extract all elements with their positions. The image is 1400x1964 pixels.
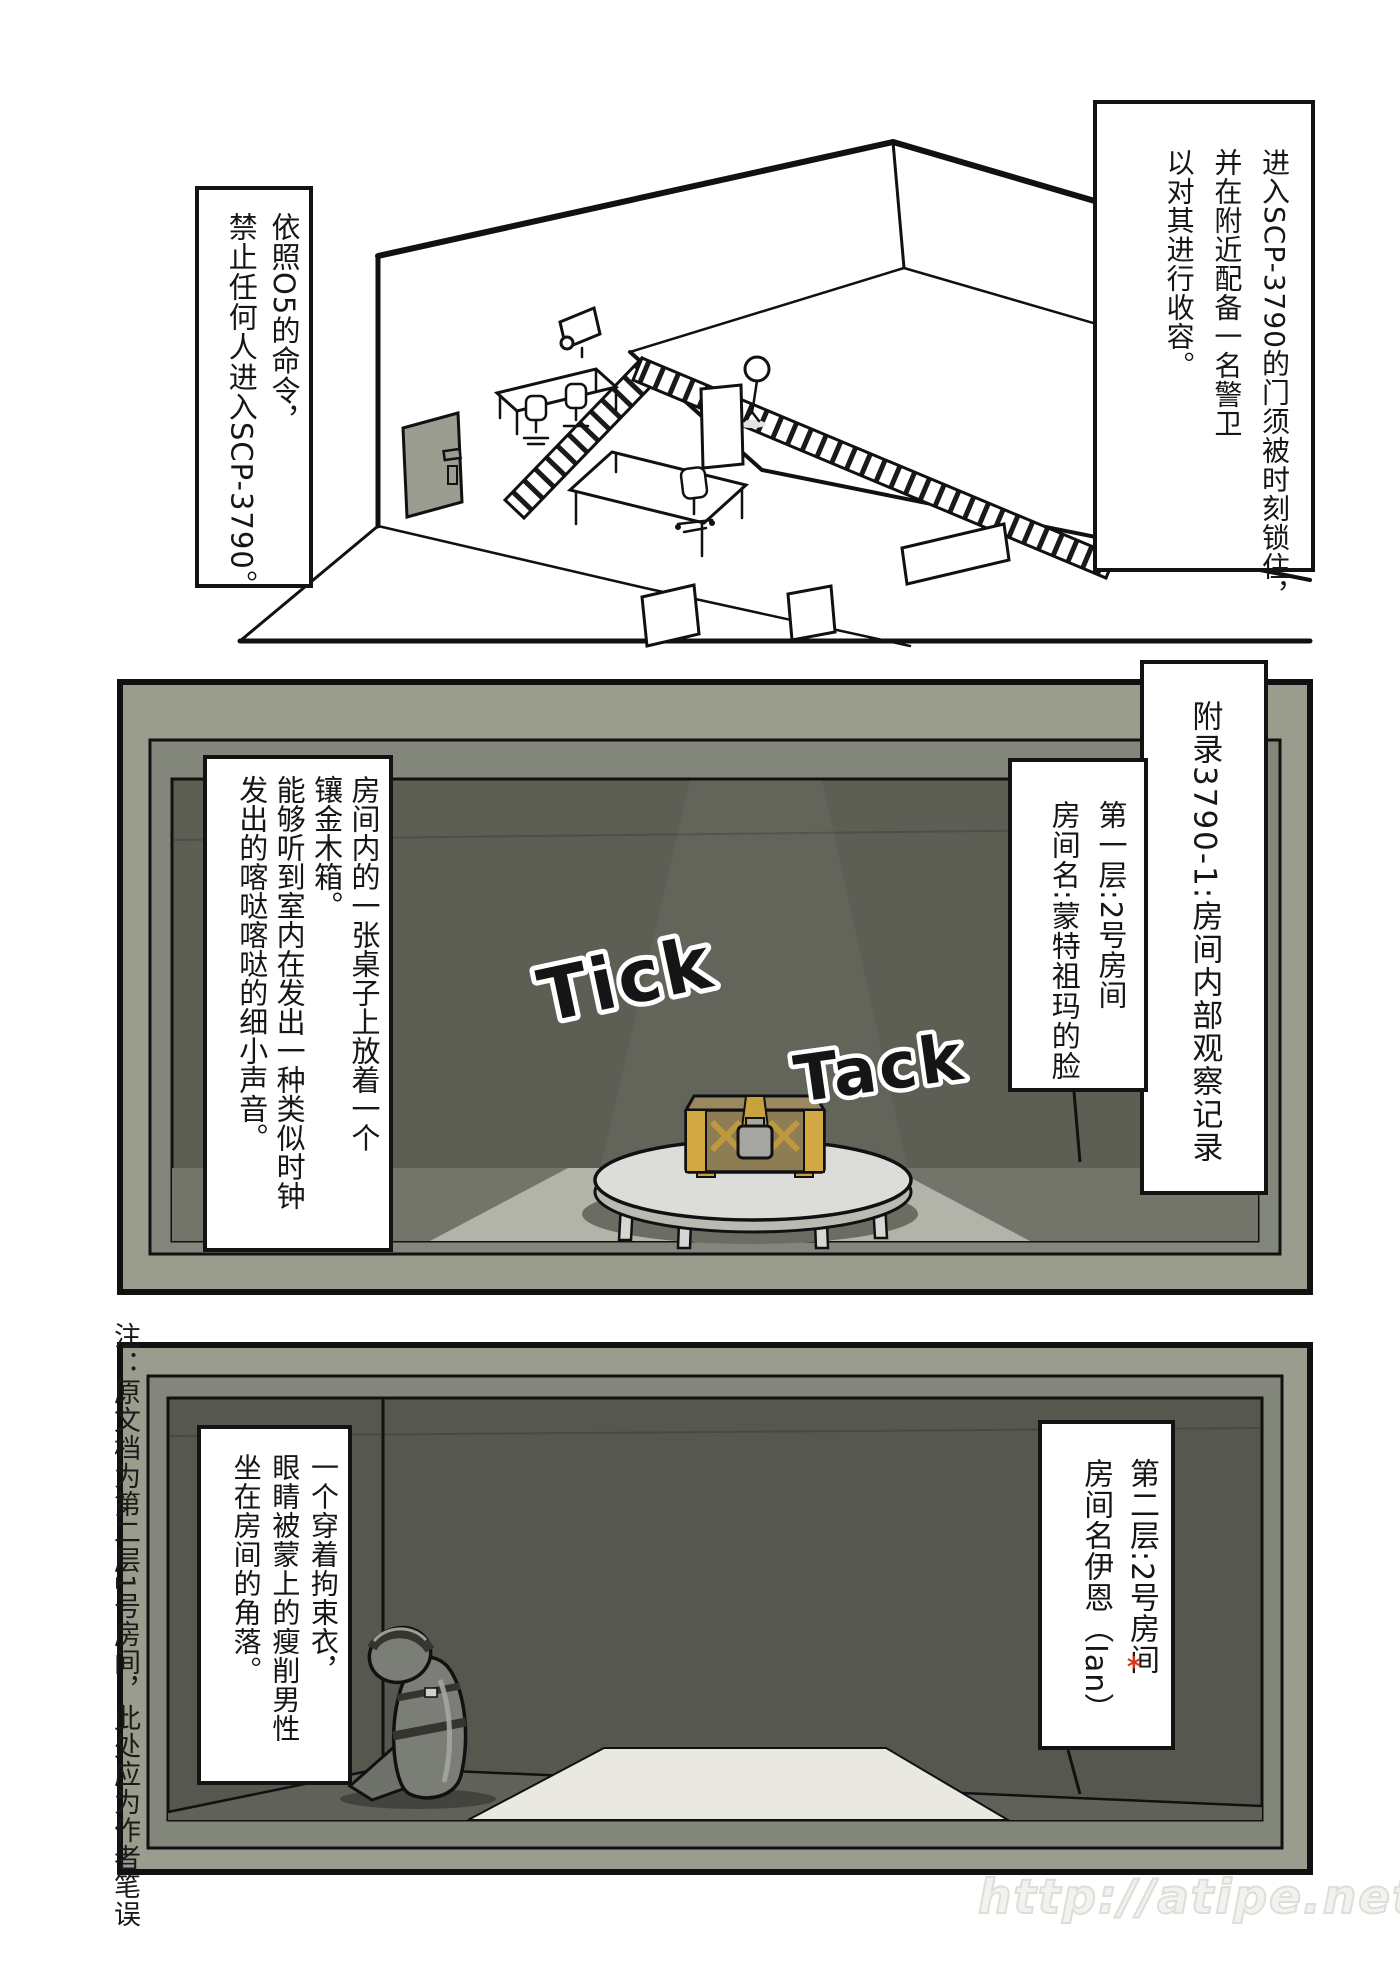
caption-column: 以对其进行收容。 bbox=[1164, 148, 1194, 554]
security-camera bbox=[560, 308, 600, 357]
appendix-label: 附录3790-1:房间内部观察记录 bbox=[1188, 700, 1221, 1155]
description-column: 一个穿着拘束衣， bbox=[308, 1453, 338, 1757]
room-label-box-floor1: 第一层:2号房间 房间名:蒙特祖玛的脸 bbox=[1008, 758, 1148, 1092]
appendix-label-box: 附录3790-1:房间内部观察记录 bbox=[1140, 660, 1268, 1195]
room-label-column: 房间名伊恩（Ian） bbox=[1079, 1458, 1111, 1712]
caption-column: 并在附近配备一名警卫 bbox=[1212, 148, 1242, 554]
comic-page: Tick Tack bbox=[0, 0, 1400, 1964]
room-label-column: 房间名:蒙特祖玛的脸 bbox=[1049, 800, 1080, 1050]
office-chair bbox=[524, 396, 548, 444]
description-box-chest: 房间内的一张桌子上放着一个 镶金木箱。 能够听到室内在发出一种类似时钟 发出的喀… bbox=[203, 755, 393, 1252]
site-watermark: http://atipe.net/ bbox=[978, 1870, 1378, 1936]
translator-margin-note: 注：原文档为第二层1号房间，此处应为作者笔误 bbox=[88, 1322, 138, 1962]
footnote-asterisk: * bbox=[1127, 1652, 1141, 1683]
door bbox=[403, 413, 462, 517]
description-column: 发出的喀哒喀哒的细小声音。 bbox=[236, 775, 266, 1232]
description-column: 坐在房间的角落。 bbox=[231, 1453, 261, 1757]
floor-cabinets bbox=[642, 524, 1009, 646]
description-box-figure: 一个穿着拘束衣， 眼睛被蒙上的瘦削男性 坐在房间的角落。 bbox=[197, 1425, 352, 1785]
caption-column: 进入SCP-3790的门须被时刻锁住， bbox=[1259, 148, 1289, 554]
description-column: 镶金木箱。 bbox=[311, 775, 341, 1232]
wall-door bbox=[701, 385, 743, 468]
caption-column: 依照O5的命令， bbox=[268, 212, 299, 562]
description-column: 能够听到室内在发出一种类似时钟 bbox=[274, 775, 304, 1232]
caption-box-containment: 进入SCP-3790的门须被时刻锁住， 并在附近配备一名警卫 以对其进行收容。 bbox=[1093, 100, 1315, 572]
description-column: 房间内的一张桌子上放着一个 bbox=[349, 775, 379, 1232]
room-label-box-floor2: 第二层:2号房间 房间名伊恩（Ian） * bbox=[1038, 1420, 1175, 1750]
caption-column: 禁止任何人进入SCP-3790。 bbox=[226, 212, 257, 562]
description-column: 眼睛被蒙上的瘦削男性 bbox=[270, 1453, 300, 1757]
caption-box-o5-order: 依照O5的命令， 禁止任何人进入SCP-3790。 bbox=[195, 186, 313, 588]
room-label-column: 第一层:2号房间 bbox=[1095, 800, 1126, 1050]
